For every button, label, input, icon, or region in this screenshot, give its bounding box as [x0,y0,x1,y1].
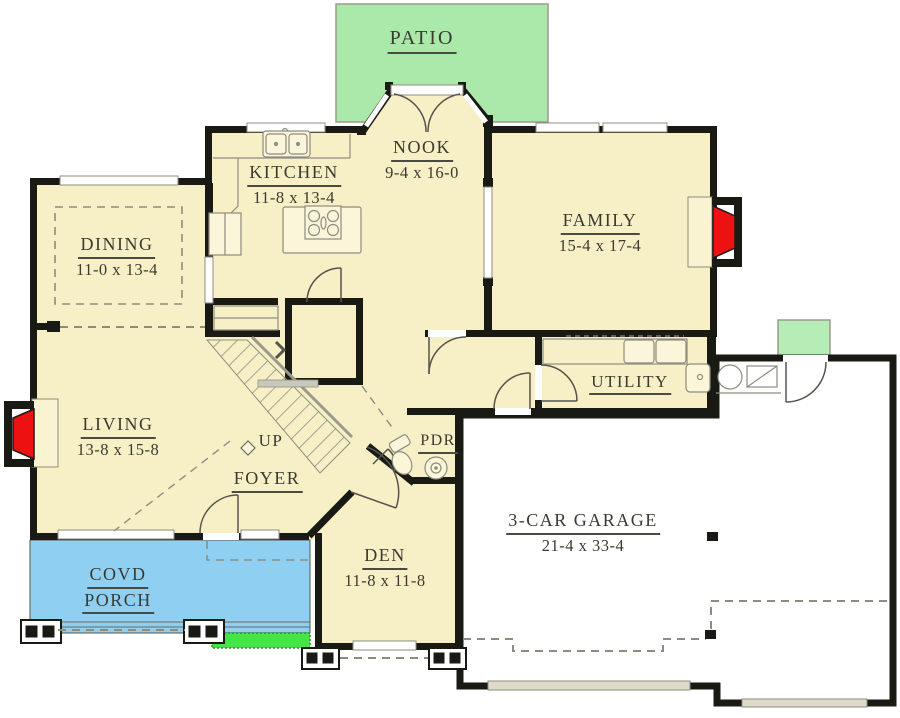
den-dims: 11-8 x 11-8 [344,571,425,592]
room-label-patio: PATIO [388,26,457,54]
den-name: DEN [362,544,408,570]
patio-name: PATIO [388,26,457,54]
floor-plan: PATIO NOOK9-4 x 16-0 KITCHEN11-8 x 13-4 … [0,0,900,718]
room-label-family: FAMILY15-4 x 17-4 [559,209,642,256]
dining-name: DINING [79,233,156,259]
stairs-up-label: UP [257,430,286,452]
pdr-sink-icon [425,457,447,479]
room-label-kitchen: KITCHEN11-8 x 13-4 [247,161,341,208]
foyer-name: FOYER [232,467,303,493]
porch-name-line2: PORCH [82,589,154,615]
room-label-utility: UTILITY [589,371,671,395]
room-label-garage: 3-CAR GARAGE21-4 x 33-4 [506,509,660,556]
room-label-living: LIVING13-8 x 15-8 [77,413,160,460]
room-label-den: DEN11-8 x 11-8 [344,544,425,591]
pdr-name: PDR [418,431,458,454]
room-label-foyer: FOYER [232,467,303,493]
living-dims: 13-8 x 15-8 [77,440,160,461]
family-fireplace [688,197,742,267]
kitchen-dims: 11-8 x 13-4 [247,188,341,209]
family-dims: 15-4 x 17-4 [559,236,642,257]
room-label-nook: NOOK9-4 x 16-0 [385,136,459,183]
dryer-icon [656,340,686,363]
room-label-dining: DINING11-0 x 13-4 [76,233,158,280]
laundry-sink [686,364,710,392]
furnace [747,366,777,387]
nook-dims: 9-4 x 16-0 [385,163,459,184]
kitchen-island [283,206,361,253]
garage-stoop [778,320,830,358]
family-fireplace-firebox [713,206,735,258]
kitchen-sink [263,129,310,158]
garage-dims: 21-4 x 33-4 [506,536,660,557]
porch-name-line1: COVD [87,563,148,589]
nook-name: NOOK [391,136,453,162]
living-name: LIVING [81,413,156,439]
family-name: FAMILY [561,209,640,235]
living-fireplace-firebox [13,409,34,459]
utility-name: UTILITY [589,371,671,395]
dining-dims: 11-0 x 13-4 [76,260,158,281]
kitchen-name: KITCHEN [247,161,341,187]
up-text: UP [257,430,286,452]
refrigerator [209,213,241,255]
room-label-porch: COVDPORCH [82,563,154,614]
water-heater [718,365,742,389]
garage-name: 3-CAR GARAGE [506,509,660,535]
washer-icon [624,340,654,363]
porch-area [30,540,320,664]
room-label-pdr: PDR [418,431,458,454]
cooktop [305,206,341,239]
